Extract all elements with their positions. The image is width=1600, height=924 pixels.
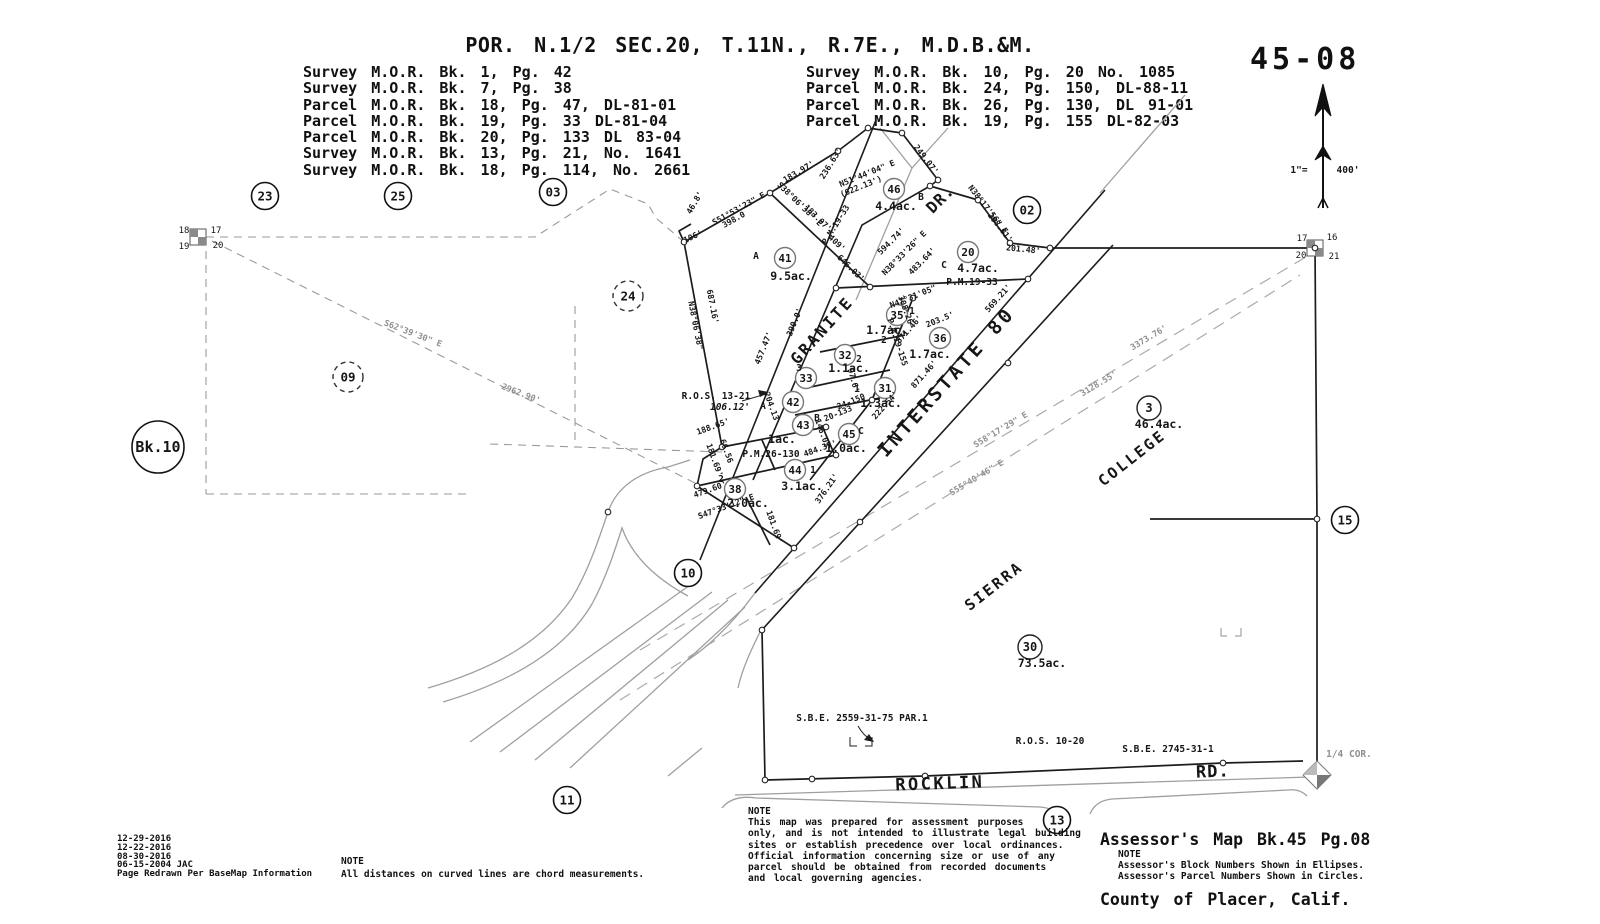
boundary-node <box>899 130 905 136</box>
section-number: 25 <box>390 189 405 204</box>
note-line: Assessor's Parcel Numbers Shown in Circl… <box>1118 871 1364 882</box>
parcel-map-canvas: 23250302101113152409Bk.10419.5ac.464.4ac… <box>0 0 1600 924</box>
section-number: 11 <box>559 793 574 808</box>
bearing-label: N38°33'26" E <box>879 228 928 277</box>
boundary-node <box>1312 245 1318 251</box>
boundary-node <box>1005 360 1011 366</box>
section-number: 15 <box>1337 513 1352 528</box>
reference-label: S.B.E. 2559-31-75 PAR.1 <box>796 713 928 724</box>
parcel-number: 36 <box>933 332 947 345</box>
bearing-label: N38°06'38" <box>686 300 705 350</box>
parcel-sub-letter: A <box>753 251 759 262</box>
bearing-label: 646.03' <box>835 252 867 283</box>
parcel-acreage: 73.5ac. <box>1018 656 1066 670</box>
bearing-label: 390.0' <box>784 306 804 337</box>
note-line: sites or establish precedence over local… <box>748 840 1081 851</box>
parcel-number: 3 <box>1145 401 1152 415</box>
parcel-number: 45 <box>842 428 855 441</box>
bearing-label: 46.8' <box>684 189 705 215</box>
revision-date: Page Redrawn Per BaseMap Information <box>117 870 312 879</box>
bearing-label: 687.16' <box>705 289 721 325</box>
boundary-node <box>767 190 773 196</box>
note-number-conventions: NOTEAssessor's Block Numbers Shown in El… <box>1118 849 1364 882</box>
section-number: 23 <box>257 189 272 204</box>
reference-label: R.O.S. 13-21 <box>682 391 751 402</box>
parcel-number: 43 <box>796 419 809 432</box>
boundary-node <box>759 627 765 633</box>
book-circle-label: Bk.10 <box>135 438 180 456</box>
reference-label: P.M.19-33 <box>946 277 998 288</box>
bearing-label: 203.5' <box>924 309 955 329</box>
parcel-acreage: 4.4ac. <box>875 199 917 213</box>
parcel-number: 38 <box>728 483 741 496</box>
bearing-label: 201.48' <box>1006 242 1041 256</box>
parcel-acreage: 4.7ac. <box>957 261 999 275</box>
note-line: and local governing agencies. <box>748 873 1081 884</box>
reference-label: 400' <box>1337 165 1360 176</box>
corner-monument-number: 20 <box>1296 251 1307 261</box>
section-number: 02 <box>1019 203 1034 218</box>
note-line: All distances on curved lines are chord … <box>341 868 644 881</box>
dashed-survey-lines <box>206 189 722 494</box>
parcel-number: 30 <box>1023 640 1037 654</box>
section-number: 09 <box>340 370 355 385</box>
corner-monument-number: 20 <box>213 241 224 251</box>
bearing-label: 249.07' <box>912 142 941 175</box>
boundary-node <box>867 284 873 290</box>
quarter-corner-diamond <box>1303 761 1331 789</box>
boundary-node <box>857 519 863 525</box>
parcel-sub-letter: 2 <box>856 354 862 365</box>
boundary-node <box>1047 245 1053 251</box>
corner-monument-number: 19 <box>179 242 190 252</box>
bearing-label: 236.63' <box>817 146 844 181</box>
parcel-sub-letter: A <box>760 401 766 412</box>
reference-label: S.B.E. 2745-31-1 <box>1122 744 1214 755</box>
note-line: NOTE <box>341 855 644 868</box>
corner-monument-number: 17 <box>1297 234 1308 244</box>
note-line: NOTE <box>1118 849 1364 860</box>
corner-monument-northwest <box>190 229 206 245</box>
note-line: parcel should be obtained from recorded … <box>748 862 1081 873</box>
note-line: NOTE <box>748 806 1081 817</box>
parcel-number: 20 <box>961 246 974 259</box>
street-label: SIERRA <box>961 558 1027 615</box>
assessor-map-page: POR. N.1/2 SEC.20, T.11N., R.7E., M.D.B.… <box>0 0 1600 924</box>
revision-dates: 12-29-201612-22-201608-30-201606-15-2004… <box>117 835 312 879</box>
bearing-label: S62°39'30" E <box>382 318 443 349</box>
street-label: ROCKLIN <box>895 772 985 795</box>
parcel-number: 44 <box>788 464 802 477</box>
parcel-number: 41 <box>778 252 792 265</box>
bearing-label: S55°40'46" E <box>948 458 1006 498</box>
bearing-label: 188.65' <box>695 416 731 437</box>
note-line: Official information concerning size or … <box>748 851 1081 862</box>
corner-monument-number: 18 <box>179 226 190 236</box>
bearing-label: 457.47' <box>752 330 774 366</box>
boundary-node <box>791 545 797 551</box>
boundary-node <box>605 509 611 515</box>
boundary-node <box>809 776 815 782</box>
bearing-label: 3373.76' <box>1129 323 1169 353</box>
section-number: 03 <box>545 185 560 200</box>
corner-monument-number: 17 <box>211 226 222 236</box>
corner-monument-number: 21 <box>1329 252 1340 262</box>
section-number: 10 <box>680 566 695 581</box>
parcel-acreage: 1ac. <box>768 432 796 446</box>
bearing-label: S58°17'29" E <box>972 410 1030 450</box>
reference-label: R.O.S. 10-20 <box>1016 736 1085 747</box>
north-arrow-icon <box>1315 84 1331 208</box>
corner-monument-number: 16 <box>1327 233 1338 243</box>
street-label: COLLEGE <box>1095 426 1170 490</box>
assessor-map-title-line1: Assessor's Map Bk.45 Pg.08 <box>1100 830 1370 850</box>
section-number: 24 <box>620 289 635 304</box>
parcel-sub-letter: C <box>941 260 947 271</box>
reference-label: 1"= <box>1290 165 1307 176</box>
bearing-label: 183.97' <box>781 158 816 184</box>
note-assessment-disclaimer: NOTEThis map was prepared for assessment… <box>748 806 1081 884</box>
reference-label: 1/4 COR. <box>1326 749 1372 760</box>
note-line: only, and is not intended to illustrate … <box>748 828 1081 839</box>
boundary-node <box>927 183 933 189</box>
assessor-map-title-line2: County of Placer, Calif. <box>1100 890 1370 910</box>
note-line: This map was prepared for assessment pur… <box>748 817 1081 828</box>
bearing-label: 106' <box>682 228 704 245</box>
note-line: Assessor's Block Numbers Shown in Ellips… <box>1118 860 1364 871</box>
parcel-number: 46 <box>887 183 901 196</box>
bearing-label: 3128.55' <box>1079 369 1119 399</box>
boundary-node <box>865 125 871 131</box>
boundary-node <box>833 285 839 291</box>
parcel-acreage: 3.1ac. <box>781 479 823 493</box>
boundary-node <box>762 777 768 783</box>
boundary-node <box>1025 276 1031 282</box>
parcel-sub-letter: 2 <box>881 335 887 346</box>
boundary-node <box>1314 516 1320 522</box>
parcel-sub-letter: 1 <box>810 465 816 476</box>
street-label: RD. <box>1196 761 1230 782</box>
reference-label: 106.12' <box>710 402 750 413</box>
bearing-label: 2962.90' <box>500 382 542 406</box>
note-curved-lines: NOTEAll distances on curved lines are ch… <box>341 855 644 881</box>
boundary-node <box>935 177 941 183</box>
parcel-number: 42 <box>786 396 799 409</box>
reference-label: P.M.26-130 <box>742 449 799 460</box>
generated-map-content: 23250302101113152409Bk.10419.5ac.464.4ac… <box>132 125 1372 833</box>
parcel-sub-letter: C <box>858 426 864 437</box>
parcel-acreage: 9.5ac. <box>770 269 812 283</box>
